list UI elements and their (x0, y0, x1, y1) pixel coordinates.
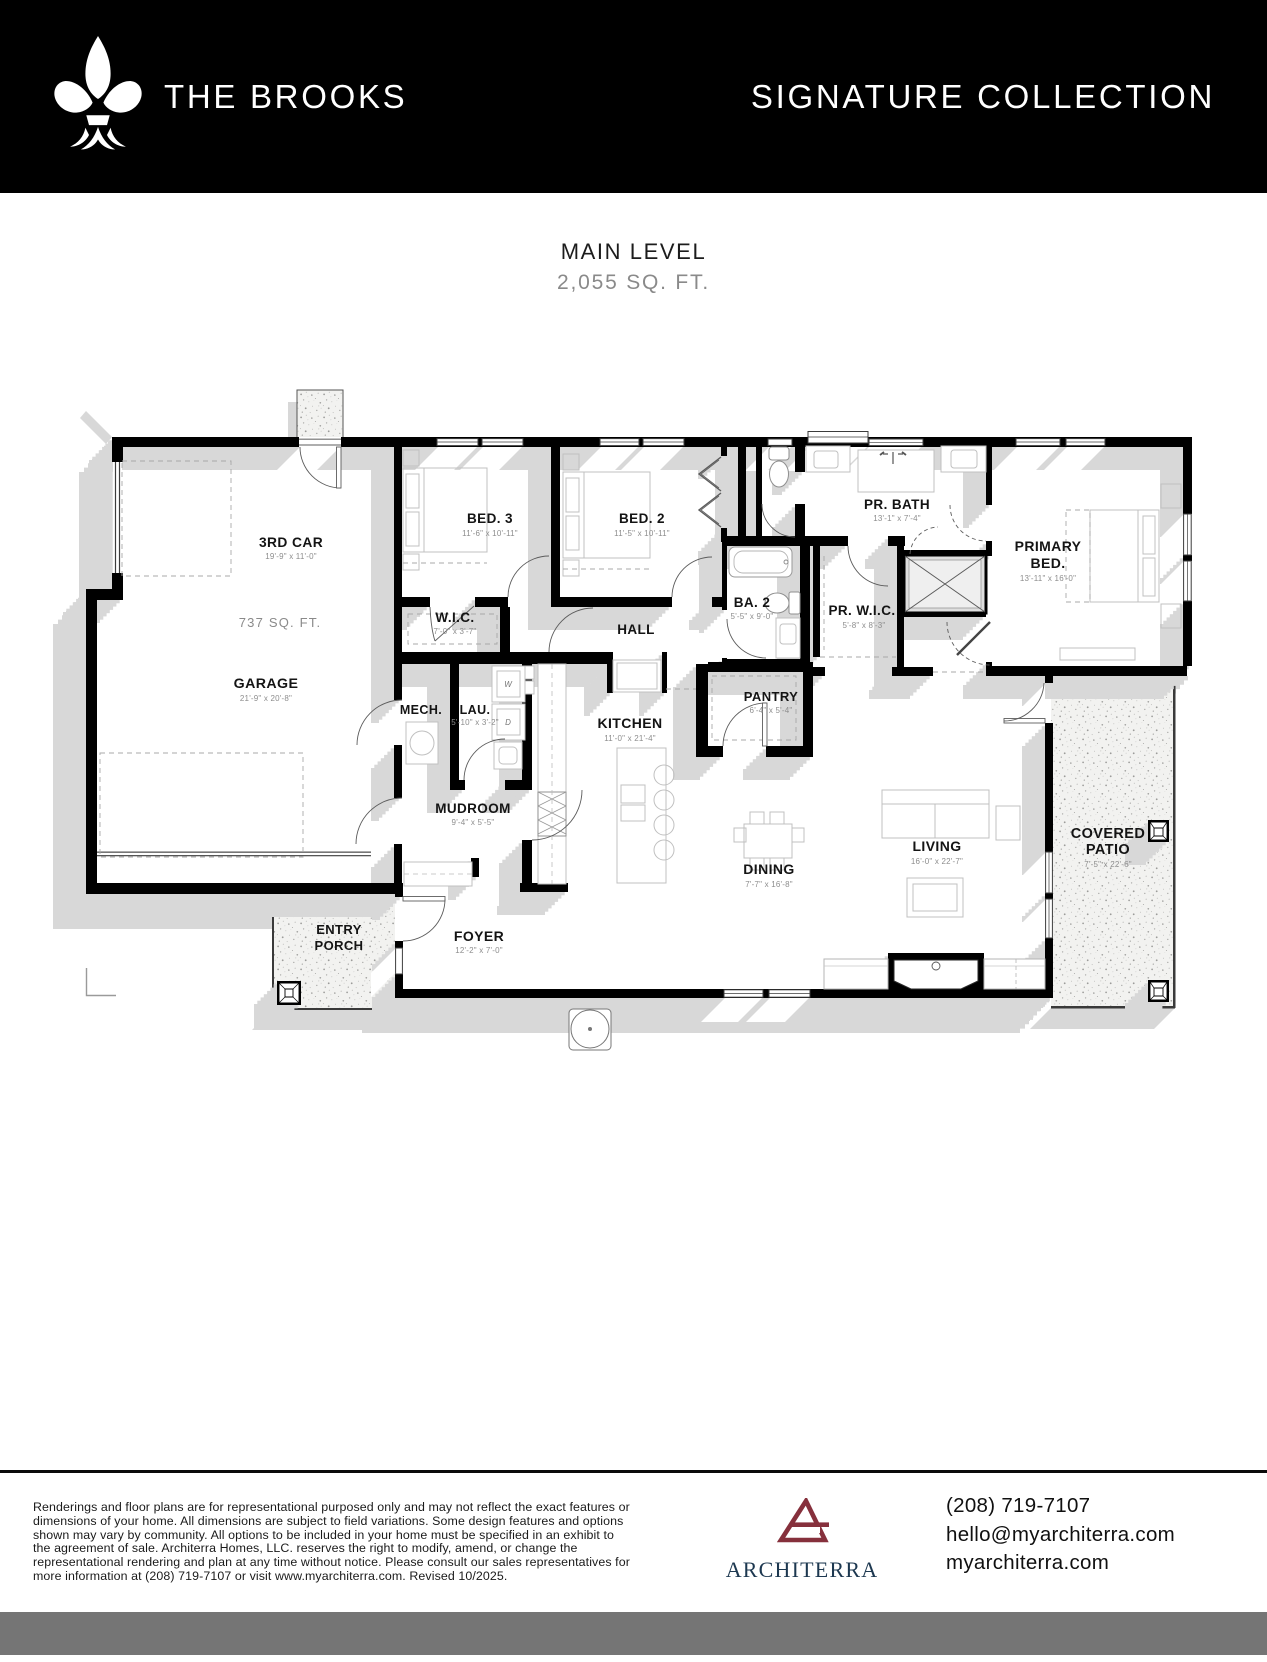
svg-text:PRIMARY: PRIMARY (1015, 538, 1082, 554)
svg-text:5'-10" x 3'-2": 5'-10" x 3'-2" (451, 718, 499, 727)
svg-text:3RD CAR: 3RD CAR (259, 535, 323, 550)
svg-text:LIVING: LIVING (912, 838, 961, 854)
svg-text:KITCHEN: KITCHEN (597, 715, 662, 731)
svg-text:7'-7" x 16'-8": 7'-7" x 16'-8" (745, 880, 793, 889)
svg-text:COVERED: COVERED (1071, 826, 1146, 842)
svg-text:GARAGE: GARAGE (234, 676, 299, 692)
svg-text:PANTRY: PANTRY (744, 689, 798, 704)
svg-text:7'-5" x 22'-6": 7'-5" x 22'-6" (1084, 860, 1132, 869)
svg-text:11'-5" x 10'-11": 11'-5" x 10'-11" (614, 529, 670, 538)
svg-text:BED. 2: BED. 2 (619, 511, 665, 526)
svg-text:5'-8" x 8'-3": 5'-8" x 8'-3" (843, 621, 886, 630)
svg-text:ENTRY: ENTRY (316, 922, 362, 937)
svg-text:W.I.C.: W.I.C. (435, 610, 474, 625)
svg-text:D: D (505, 718, 511, 727)
svg-text:13'-11" x 16'-0": 13'-11" x 16'-0" (1020, 574, 1076, 583)
svg-text:19'-9" x 11'-0": 19'-9" x 11'-0" (265, 552, 317, 561)
svg-text:16'-0" x 22'-7": 16'-0" x 22'-7" (911, 857, 963, 866)
svg-text:9'-4" x 5'-5": 9'-4" x 5'-5" (452, 818, 495, 827)
svg-text:737 SQ. FT.: 737 SQ. FT. (239, 615, 322, 630)
svg-text:BED. 3: BED. 3 (467, 511, 513, 526)
svg-text:PATIO: PATIO (1086, 842, 1130, 858)
svg-text:FOYER: FOYER (454, 928, 504, 944)
svg-text:7'-0" x 3'-7": 7'-0" x 3'-7" (434, 627, 477, 636)
svg-text:11'-6" x 10'-11": 11'-6" x 10'-11" (462, 529, 518, 538)
svg-text:HALL: HALL (617, 622, 655, 637)
svg-text:5'-5" x 9'-0": 5'-5" x 9'-0" (731, 612, 774, 621)
svg-text:BED.: BED. (1030, 555, 1065, 571)
svg-text:BA. 2: BA. 2 (734, 595, 771, 610)
svg-text:PR. W.I.C.: PR. W.I.C. (828, 603, 895, 618)
svg-text:21'-9" x 20'-8": 21'-9" x 20'-8" (240, 694, 292, 703)
svg-text:MUDROOM: MUDROOM (435, 801, 511, 816)
svg-text:PR. BATH: PR. BATH (864, 497, 930, 512)
svg-text:MECH.: MECH. (400, 703, 442, 717)
svg-text:13'-1" x 7'-4": 13'-1" x 7'-4" (873, 514, 921, 523)
svg-text:12'-2" x 7'-0": 12'-2" x 7'-0" (455, 946, 503, 955)
svg-text:11'-0" x 21'-4": 11'-0" x 21'-4" (604, 734, 656, 743)
svg-text:LAU.: LAU. (460, 703, 491, 717)
svg-text:6'-4" x 5'-4": 6'-4" x 5'-4" (750, 706, 793, 715)
svg-text:PORCH: PORCH (315, 938, 364, 953)
svg-text:DINING: DINING (743, 861, 794, 877)
